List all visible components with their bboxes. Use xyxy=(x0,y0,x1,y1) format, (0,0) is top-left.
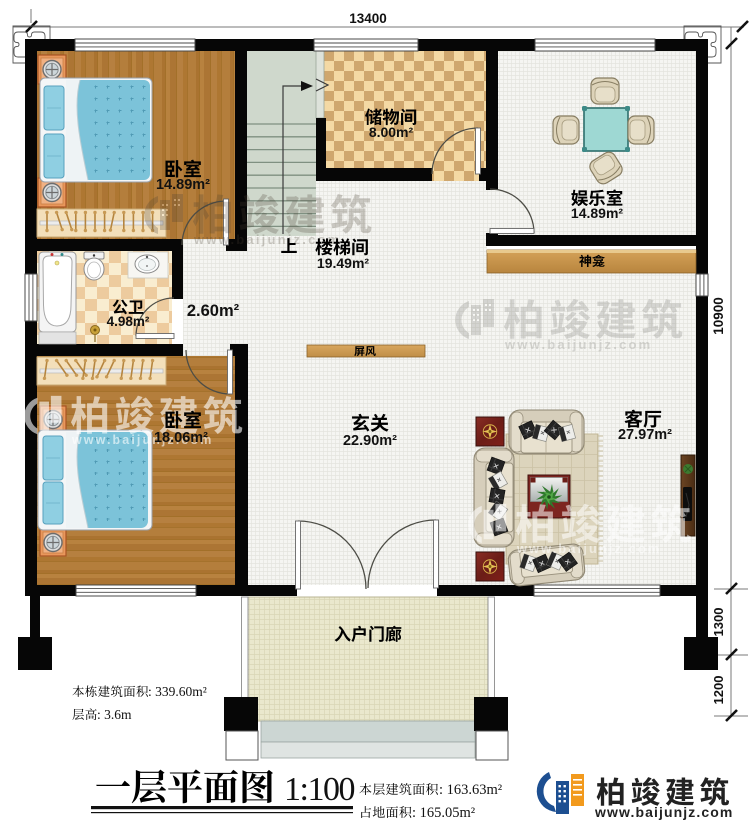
svg-text:: 165.05m²: : 165.05m² xyxy=(412,805,476,821)
svg-text:22.90m²: 22.90m² xyxy=(343,433,397,449)
svg-text:: 339.60m²: : 339.60m² xyxy=(148,684,207,699)
svg-text:8.00m²: 8.00m² xyxy=(369,124,414,140)
svg-text:19.49m²: 19.49m² xyxy=(317,255,369,271)
svg-text:1200: 1200 xyxy=(711,676,726,705)
svg-text:10900: 10900 xyxy=(711,297,726,335)
svg-text:18.06m²: 18.06m² xyxy=(154,430,208,446)
svg-text:1300: 1300 xyxy=(711,608,726,637)
svg-text:13400: 13400 xyxy=(349,11,387,26)
svg-text:: 3.6m: : 3.6m xyxy=(97,707,132,722)
svg-text:14.89m²: 14.89m² xyxy=(571,205,623,221)
svg-text:14.89m²: 14.89m² xyxy=(156,177,210,193)
svg-text:: 163.63m²: : 163.63m² xyxy=(439,782,503,798)
svg-text:2.60m²: 2.60m² xyxy=(187,302,240,320)
svg-text:www.baijunjz.com: www.baijunjz.com xyxy=(594,804,733,820)
svg-text:27.97m²: 27.97m² xyxy=(618,427,672,443)
svg-text:4.98m²: 4.98m² xyxy=(107,314,150,329)
svg-text:1:100: 1:100 xyxy=(284,771,354,808)
